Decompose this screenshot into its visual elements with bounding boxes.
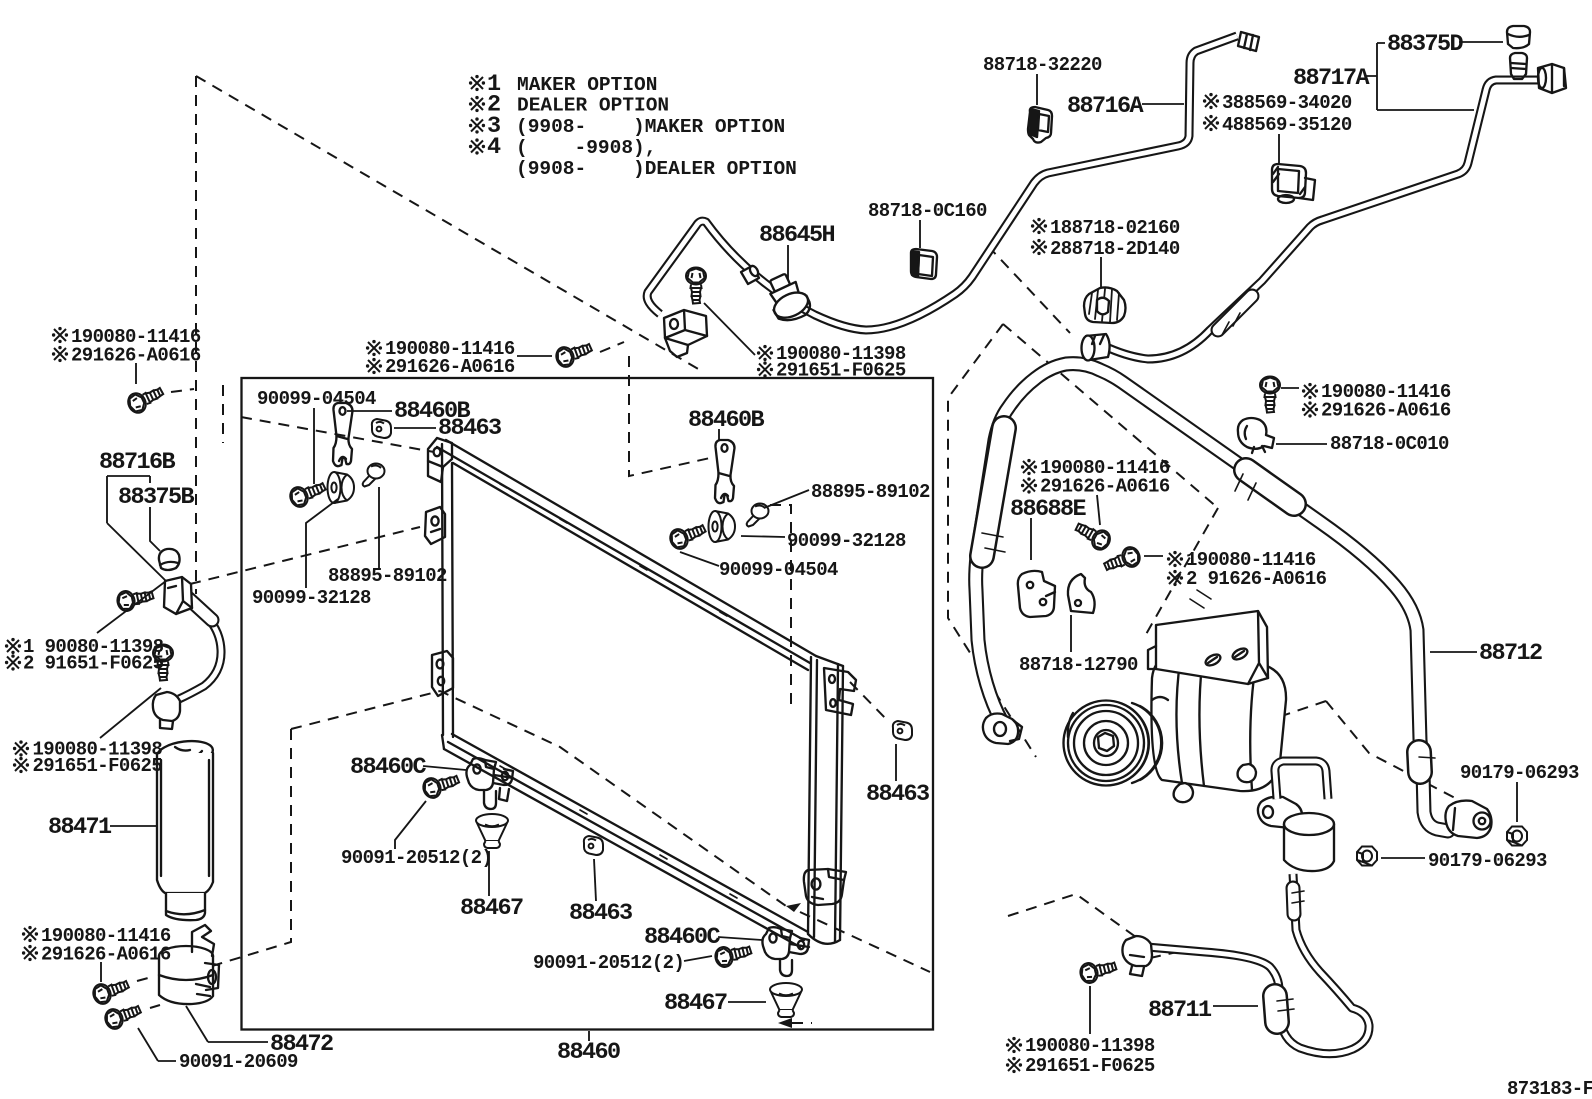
svg-text:DEALER OPTION: DEALER OPTION bbox=[517, 95, 669, 117]
svg-text:88716A: 88716A bbox=[1067, 93, 1145, 120]
svg-text:90099-32128: 90099-32128 bbox=[252, 587, 371, 609]
svg-text:90179-06293: 90179-06293 bbox=[1460, 762, 1579, 784]
svg-text:88460: 88460 bbox=[557, 1039, 620, 1066]
svg-text:88463: 88463 bbox=[569, 900, 632, 927]
svg-text:90099-04504: 90099-04504 bbox=[719, 559, 838, 581]
svg-text:88645H: 88645H bbox=[759, 222, 835, 249]
svg-text:88463: 88463 bbox=[866, 781, 929, 808]
svg-text:188718-02160: 188718-02160 bbox=[1050, 217, 1180, 239]
svg-text:(9908- )MAKER OPTION: (9908- )MAKER OPTION bbox=[516, 116, 785, 138]
svg-text:88712: 88712 bbox=[1479, 640, 1542, 667]
svg-text:2 91626-A0616: 2 91626-A0616 bbox=[1186, 568, 1327, 590]
svg-text:291626-A0616: 291626-A0616 bbox=[1040, 476, 1170, 498]
svg-text:190080-11398: 190080-11398 bbox=[1025, 1035, 1155, 1057]
svg-text:88716B: 88716B bbox=[99, 449, 176, 476]
svg-text:( -9908),: ( -9908), bbox=[516, 137, 656, 159]
svg-text:88895-89102: 88895-89102 bbox=[328, 565, 447, 587]
svg-text:88460C: 88460C bbox=[350, 754, 427, 781]
svg-text:90099-32128: 90099-32128 bbox=[787, 530, 906, 552]
svg-text:90091-20512(2): 90091-20512(2) bbox=[341, 847, 492, 869]
svg-text:88460C: 88460C bbox=[644, 924, 721, 951]
svg-text:88467: 88467 bbox=[460, 895, 523, 922]
svg-text:88718-32220: 88718-32220 bbox=[983, 54, 1102, 76]
svg-text:88895-89102: 88895-89102 bbox=[811, 481, 930, 503]
svg-text:873183-F: 873183-F bbox=[1507, 1078, 1592, 1099]
svg-text:488569-35120: 488569-35120 bbox=[1222, 114, 1352, 136]
svg-text:90179-06293: 90179-06293 bbox=[1428, 850, 1547, 872]
svg-text:88711: 88711 bbox=[1148, 997, 1212, 1024]
svg-text:90091-20609: 90091-20609 bbox=[179, 1051, 298, 1073]
svg-text:88463: 88463 bbox=[438, 415, 501, 442]
svg-text:388569-34020: 388569-34020 bbox=[1222, 92, 1352, 114]
svg-text:88460B: 88460B bbox=[688, 407, 765, 434]
svg-text:4: 4 bbox=[487, 134, 501, 161]
svg-text:88718-12790: 88718-12790 bbox=[1019, 654, 1138, 676]
svg-text:88718-0C160: 88718-0C160 bbox=[868, 200, 987, 222]
svg-text:291651-F0625: 291651-F0625 bbox=[776, 360, 906, 382]
svg-text:291626-A0616: 291626-A0616 bbox=[1321, 400, 1451, 422]
svg-text:291651-F0625: 291651-F0625 bbox=[33, 755, 163, 777]
svg-text:291651-F0625: 291651-F0625 bbox=[1025, 1055, 1155, 1077]
svg-text:88718-0C010: 88718-0C010 bbox=[1330, 433, 1449, 455]
svg-text:288718-2D140: 288718-2D140 bbox=[1050, 238, 1180, 260]
svg-text:88471: 88471 bbox=[48, 814, 112, 841]
svg-text:291626-A0616: 291626-A0616 bbox=[41, 944, 171, 966]
svg-text:291626-A0616: 291626-A0616 bbox=[385, 356, 515, 378]
svg-text:88467: 88467 bbox=[664, 990, 727, 1017]
svg-text:90091-20512(2): 90091-20512(2) bbox=[533, 952, 684, 974]
svg-text:88688E: 88688E bbox=[1010, 496, 1087, 523]
svg-text:88375D: 88375D bbox=[1387, 31, 1464, 58]
svg-text:88717A: 88717A bbox=[1293, 65, 1371, 92]
svg-text:2 91651-F0625: 2 91651-F0625 bbox=[23, 653, 164, 675]
svg-text:88375B: 88375B bbox=[118, 484, 195, 511]
svg-text:(9908- )DEALER OPTION: (9908- )DEALER OPTION bbox=[516, 158, 797, 180]
svg-text:90099-04504: 90099-04504 bbox=[257, 388, 376, 410]
svg-text:MAKER OPTION: MAKER OPTION bbox=[517, 74, 657, 96]
